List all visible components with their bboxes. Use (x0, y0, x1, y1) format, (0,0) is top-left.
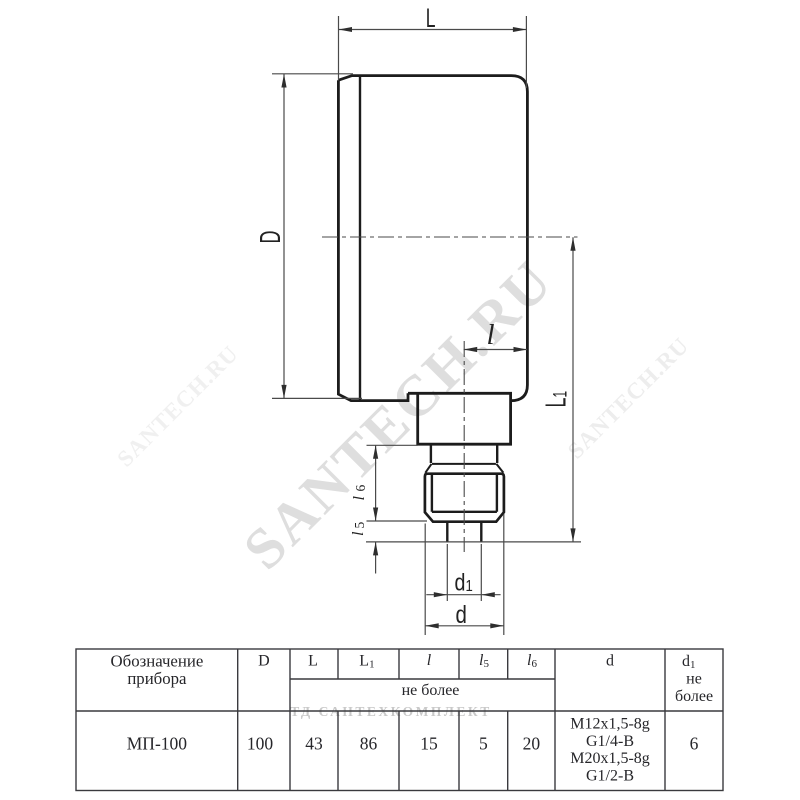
svg-text:l: l (427, 652, 432, 669)
svg-text:l5: l5 (350, 520, 367, 536)
svg-text:Обозначение: Обозначение (111, 651, 204, 670)
svg-text:M20x1,5-8g: M20x1,5-8g (570, 750, 650, 767)
svg-text:прибора: прибора (127, 669, 187, 688)
svg-text:не: не (686, 671, 702, 688)
svg-text:L: L (426, 2, 436, 33)
svg-text:43: 43 (305, 733, 323, 753)
svg-text:d: d (606, 653, 614, 670)
svg-text:86: 86 (360, 733, 378, 753)
svg-text:МП-100: МП-100 (127, 733, 188, 753)
svg-text:G1/2-B: G1/2-B (586, 768, 634, 785)
svg-text:M12x1,5-8g: M12x1,5-8g (570, 715, 650, 732)
svg-text:l: l (487, 319, 495, 351)
svg-text:l6: l6 (351, 483, 368, 500)
svg-text:5: 5 (479, 733, 488, 753)
svg-text:D: D (258, 652, 270, 669)
svg-text:D: D (255, 231, 287, 244)
svg-text:15: 15 (420, 733, 438, 753)
svg-text:d: d (456, 600, 467, 628)
svg-text:6: 6 (690, 733, 699, 753)
svg-text:G1/4-B: G1/4-B (586, 733, 634, 750)
svg-text:не более: не более (402, 682, 460, 699)
svg-text:L: L (308, 652, 318, 669)
svg-text:20: 20 (523, 733, 541, 753)
svg-text:более: более (675, 688, 713, 705)
svg-text:100: 100 (247, 733, 274, 753)
